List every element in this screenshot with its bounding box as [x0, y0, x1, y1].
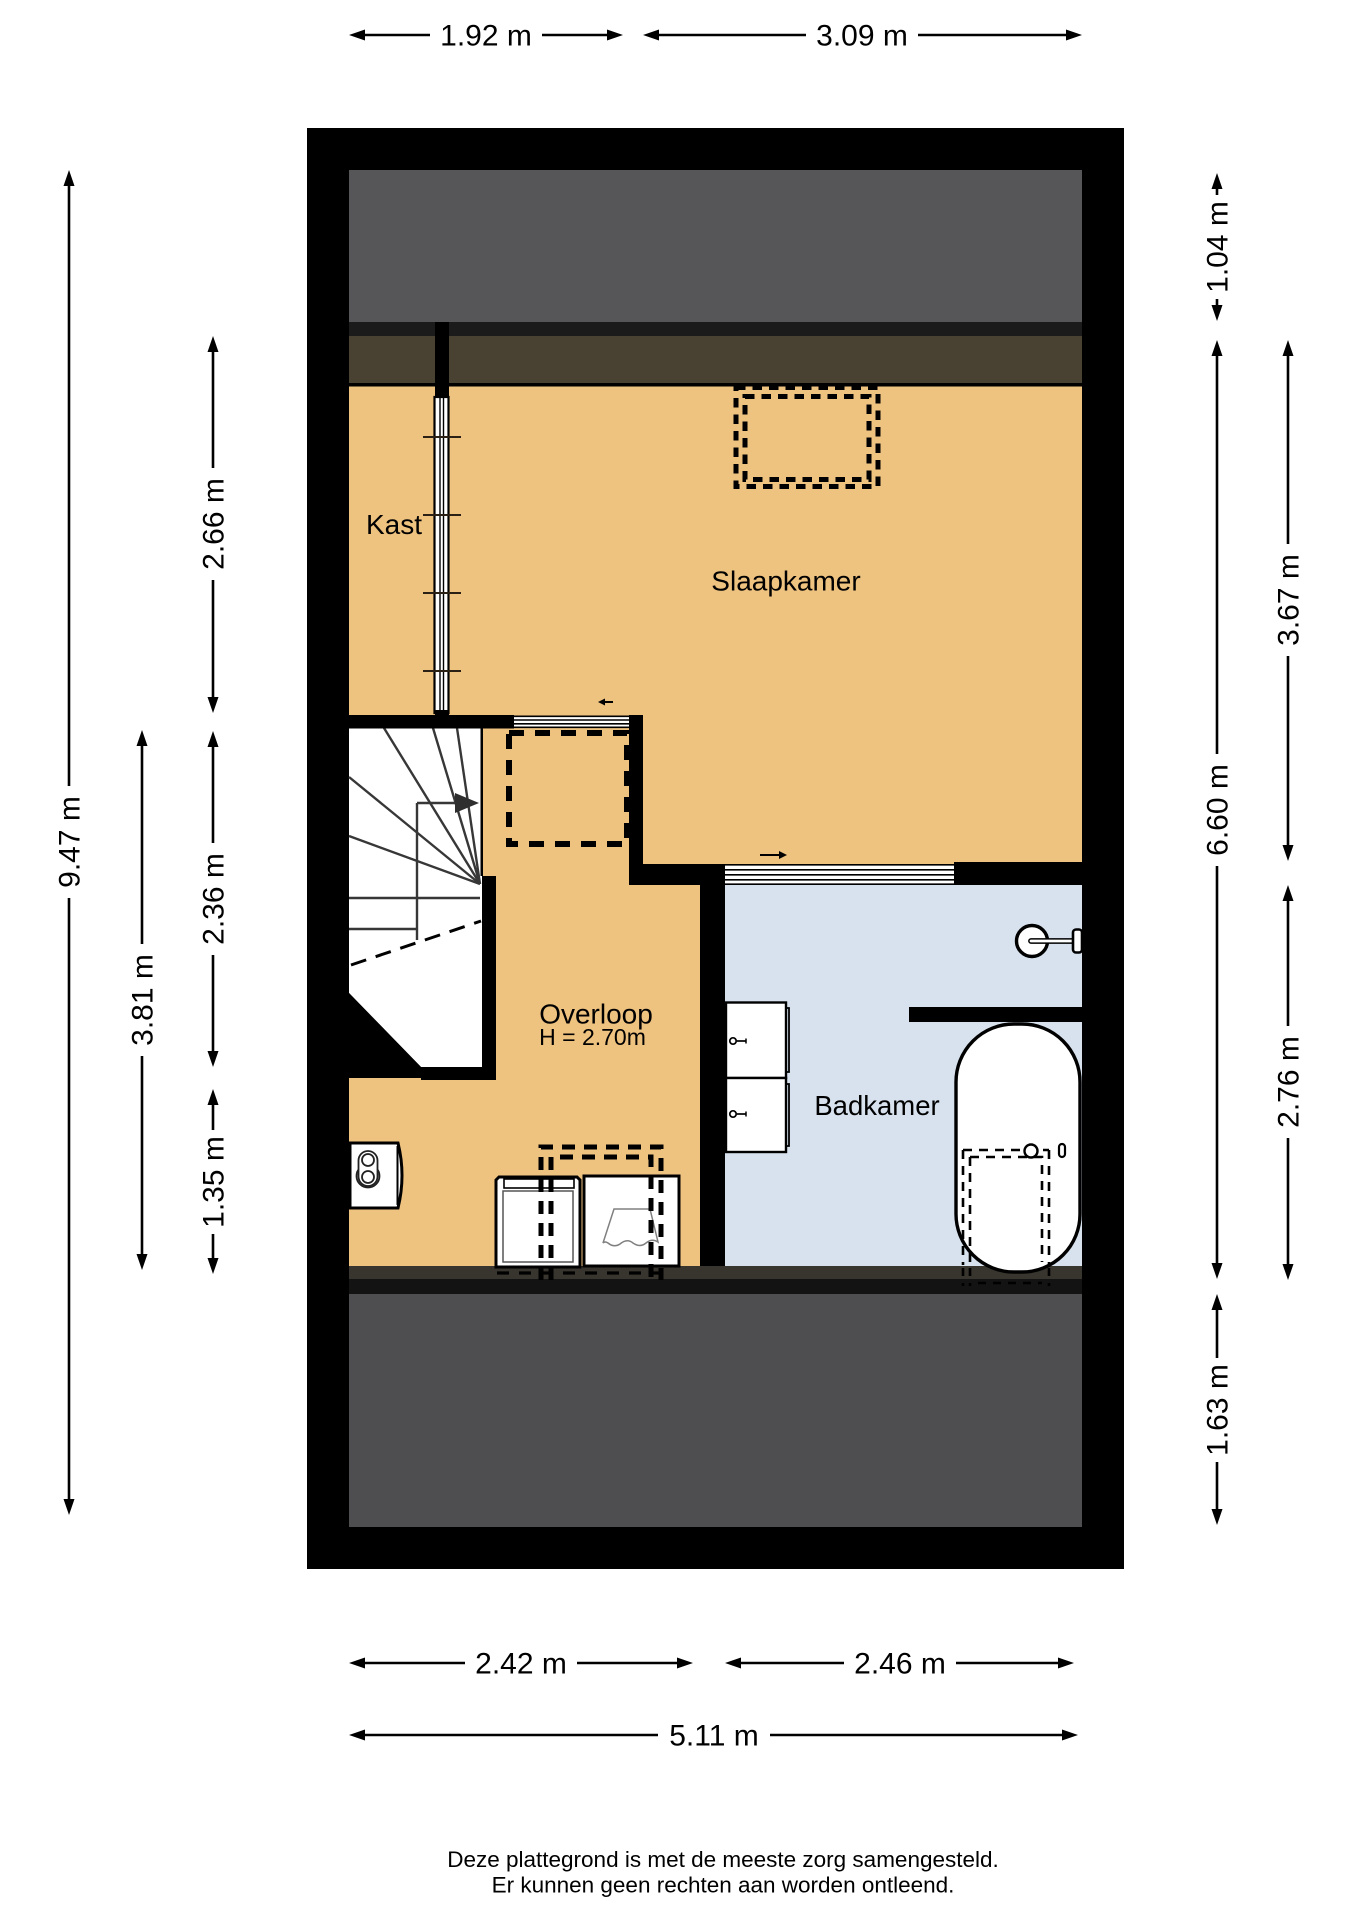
svg-text:2.76 m: 2.76 m: [1273, 1036, 1306, 1128]
svg-text:1.04 m: 1.04 m: [1202, 201, 1235, 293]
svg-text:2.36 m: 2.36 m: [198, 853, 231, 945]
svg-text:1.92 m: 1.92 m: [440, 20, 532, 53]
svg-text:Kast: Kast: [366, 509, 422, 540]
svg-text:1.63 m: 1.63 m: [1202, 1364, 1235, 1456]
svg-text:2.46 m: 2.46 m: [854, 1648, 946, 1681]
svg-text:2.66 m: 2.66 m: [198, 478, 231, 570]
svg-text:Badkamer: Badkamer: [814, 1090, 939, 1121]
svg-text:2.42 m: 2.42 m: [475, 1648, 567, 1681]
svg-text:Slaapkamer: Slaapkamer: [711, 566, 860, 597]
svg-text:6.60 m: 6.60 m: [1202, 764, 1235, 856]
svg-text:5.11 m: 5.11 m: [669, 1720, 759, 1753]
svg-text:9.47 m: 9.47 m: [54, 796, 87, 888]
svg-text:3.81 m: 3.81 m: [127, 954, 160, 1046]
svg-text:Deze plattegrond is met de mee: Deze plattegrond is met de meeste zorg s…: [447, 1847, 999, 1872]
svg-text:H = 2.70m: H = 2.70m: [539, 1024, 646, 1050]
svg-text:3.09 m: 3.09 m: [816, 20, 908, 53]
svg-text:1.35 m: 1.35 m: [198, 1136, 231, 1228]
svg-text:Er kunnen geen rechten aan wor: Er kunnen geen rechten aan worden ontlee…: [492, 1873, 955, 1898]
svg-text:3.67 m: 3.67 m: [1273, 554, 1306, 646]
